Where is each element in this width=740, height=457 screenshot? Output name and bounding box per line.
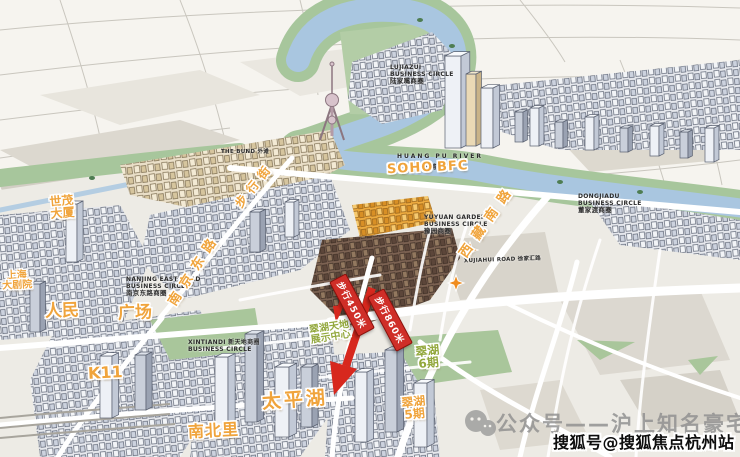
label-shimao-tower: 世茂 大厦 [49,194,75,220]
label-grand-theatre-l2: 大剧院 [2,280,32,292]
caption-lujiazui: LUJIAZUI BUSINESS CIRCLE 陆家嘴商圈 [390,64,454,86]
caption-xintiandi-ln2: BUSINESS CIRCLE [188,346,260,353]
label-k11: K11 [88,364,123,382]
label-grand-theatre: 上海 大剧院 [1,270,32,292]
label-cuihu6-l2: 6期 [416,356,441,371]
caption-xintiandi: XINTIANDI 新天地商圈 BUSINESS CIRCLE [188,339,260,353]
map-artwork [0,0,740,457]
caption-dongjiadu-cn: 董家渡商圈 [578,207,642,215]
caption-dongjiadu: DONGJIADU BUSINESS CIRCLE 董家渡商圈 [578,193,642,215]
wechat-icon [463,409,497,439]
label-cuihu-phase5: 翠湖 5期 [401,395,427,422]
illustrated-city-map: LUJIAZUI BUSINESS CIRCLE 陆家嘴商圈 HUANG PU … [0,0,740,457]
label-nanbeili: 南北里 [188,422,240,441]
caption-the-bund: THE BUND 外滩 [221,149,269,156]
label-guangchang: 广场 [118,304,153,323]
label-cuihu-phase6: 翠湖 6期 [415,344,441,371]
label-soho: SOHO [387,161,434,177]
label-shimao-l2: 大厦 [50,206,75,220]
label-bfc: BFC [437,159,469,174]
caption-the-bund-text: THE BUND 外滩 [221,149,269,155]
label-renmin: 人民 [45,302,80,321]
caption-nanjing-cn: 南京东路商圈 [126,290,201,298]
sohu-watermark: 搜狐号@搜狐焦点杭州站 [553,429,735,453]
caption-lujiazui-cn: 陆家嘴商圈 [390,78,454,86]
label-cuihu5-l2: 5期 [402,407,427,422]
label-taipinghu: 太平湖 [261,389,328,413]
